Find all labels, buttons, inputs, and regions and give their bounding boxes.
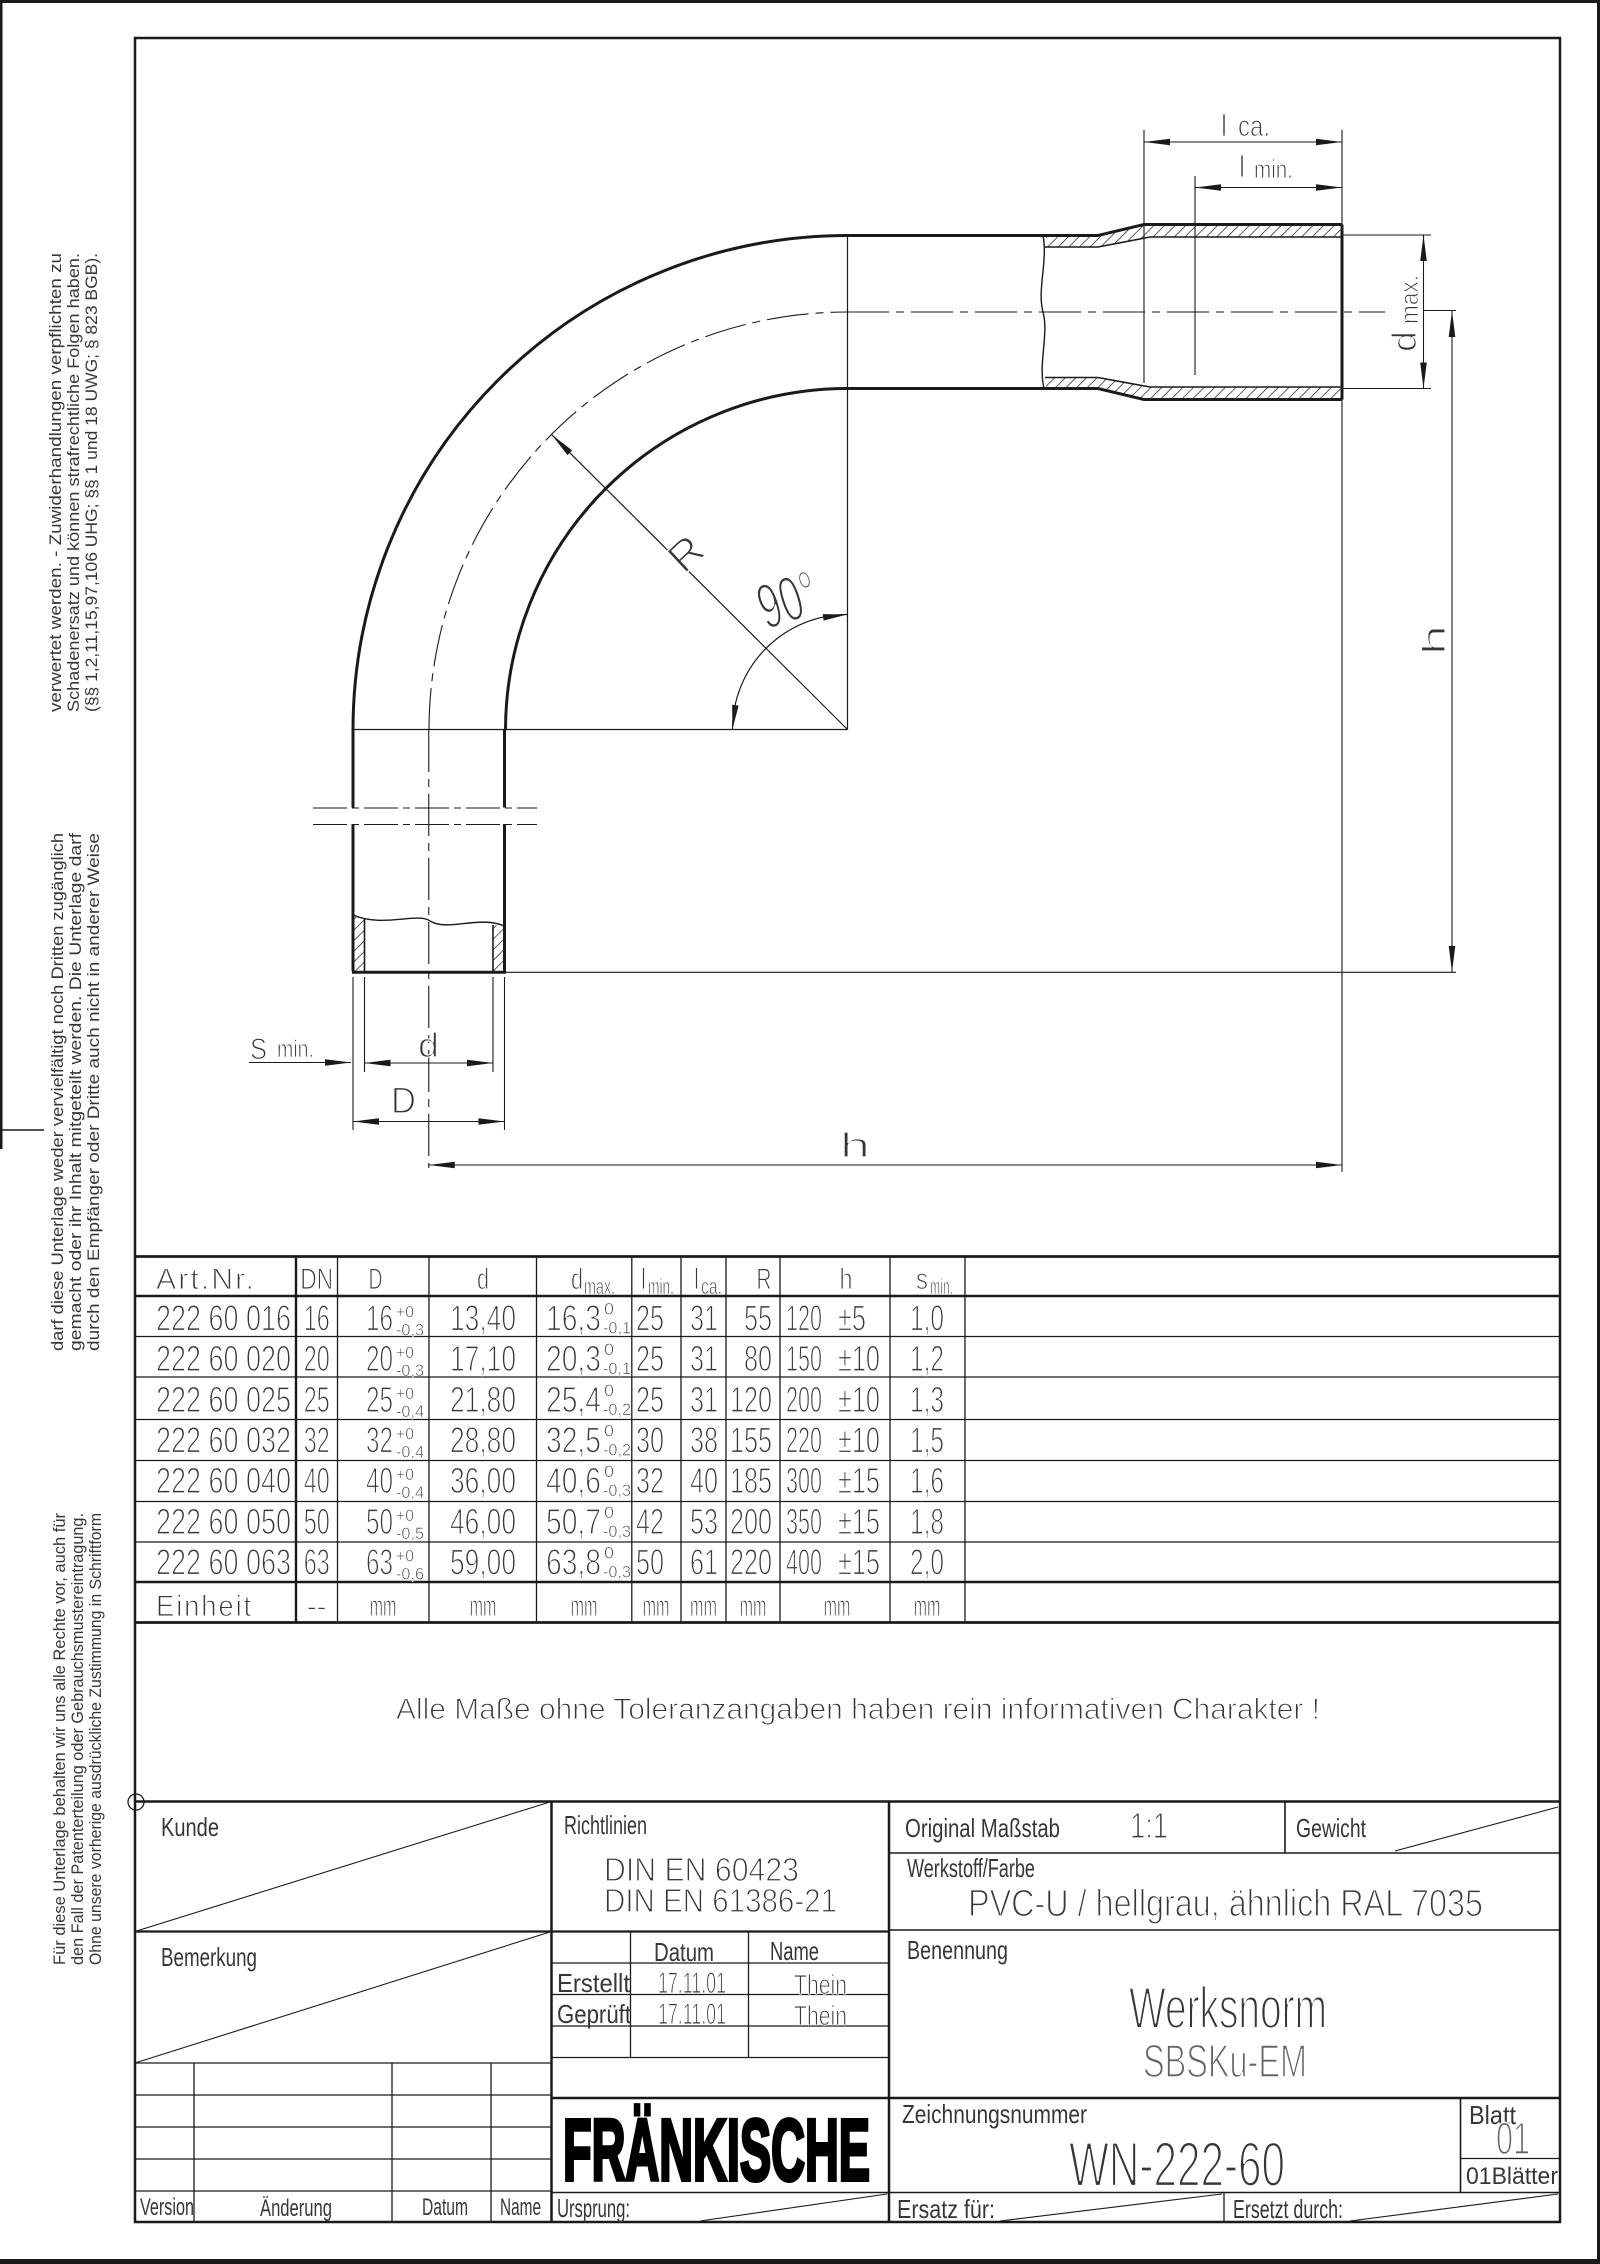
- svg-text:Datum: Datum: [654, 1937, 714, 1967]
- svg-text:+0: +0: [396, 1424, 414, 1443]
- svg-text:200: 200: [786, 1379, 822, 1420]
- svg-text:50: 50: [366, 1501, 393, 1542]
- svg-text:40: 40: [690, 1460, 718, 1501]
- svg-text:-0,4: -0,4: [396, 1442, 424, 1461]
- svg-text:1,0: 1,0: [910, 1298, 944, 1339]
- svg-text:max.: max.: [584, 1274, 615, 1299]
- svg-text:±15: ±15: [838, 1501, 880, 1542]
- svg-text:mm: mm: [470, 1590, 497, 1623]
- svg-text:±10: ±10: [838, 1379, 880, 1420]
- svg-text:Änderung: Änderung: [260, 2195, 332, 2222]
- svg-text:222 60 063: 222 60 063: [156, 1541, 291, 1582]
- svg-text:25: 25: [366, 1379, 393, 1420]
- svg-text:25: 25: [636, 1379, 664, 1420]
- svg-text:50,7: 50,7: [546, 1501, 601, 1542]
- svg-text:222 60 025: 222 60 025: [156, 1379, 291, 1420]
- svg-text:D: D: [369, 1263, 383, 1296]
- svg-text:0: 0: [604, 1543, 614, 1562]
- svg-text:R: R: [757, 1263, 772, 1296]
- svg-text:WN-222-60: WN-222-60: [1069, 2130, 1285, 2200]
- svg-text:Gewicht: Gewicht: [1296, 1813, 1367, 1843]
- svg-text:l: l: [1239, 149, 1245, 184]
- svg-text:-0,4: -0,4: [396, 1402, 424, 1421]
- svg-text:Richtlinien: Richtlinien: [564, 1810, 647, 1840]
- svg-text:350: 350: [786, 1501, 822, 1542]
- svg-text:55: 55: [744, 1298, 772, 1339]
- svg-text:31: 31: [690, 1379, 718, 1420]
- svg-text:1:1: 1:1: [1130, 1805, 1168, 1846]
- svg-text:Ohne unsere vorherige ausdrück: Ohne unsere vorherige ausdrückliche Zust…: [86, 1513, 105, 1965]
- svg-text:400: 400: [786, 1541, 822, 1582]
- svg-text:20,3: 20,3: [546, 1338, 601, 1379]
- svg-text:31: 31: [690, 1338, 718, 1379]
- svg-text:Thein: Thein: [794, 1969, 847, 2000]
- svg-text:16,3: 16,3: [546, 1298, 601, 1339]
- svg-text:-0,3: -0,3: [603, 1522, 631, 1541]
- svg-text:±5: ±5: [838, 1298, 866, 1339]
- svg-text:mm: mm: [571, 1590, 598, 1623]
- svg-text:222 60 050: 222 60 050: [156, 1501, 291, 1542]
- svg-text:-0,2: -0,2: [603, 1400, 631, 1419]
- svg-text:l: l: [641, 1263, 646, 1296]
- svg-text:DN: DN: [300, 1263, 333, 1296]
- svg-text:25: 25: [636, 1298, 664, 1339]
- svg-text:150: 150: [786, 1338, 822, 1379]
- svg-text:Art.Nr.: Art.Nr.: [156, 1263, 256, 1296]
- svg-text:darf diese Unterlage weder ver: darf diese Unterlage weder vervielfältig…: [48, 833, 67, 1351]
- svg-text:63: 63: [304, 1541, 330, 1582]
- svg-text:Benennung: Benennung: [907, 1935, 1008, 1965]
- svg-text:17,10: 17,10: [450, 1338, 516, 1379]
- svg-text:+0: +0: [396, 1384, 414, 1403]
- svg-text:Alle Maße ohne Toleranzangaben: Alle Maße ohne Toleranzangaben haben rei…: [396, 1693, 1320, 1726]
- svg-text:min.: min.: [648, 1274, 674, 1299]
- svg-text:-0,1: -0,1: [603, 1319, 631, 1338]
- svg-text:±15: ±15: [838, 1460, 880, 1501]
- svg-text:01: 01: [1496, 2113, 1530, 2164]
- svg-text:222 60 032: 222 60 032: [156, 1419, 291, 1460]
- svg-text:-0,3: -0,3: [396, 1321, 424, 1340]
- svg-text:Einheit: Einheit: [156, 1590, 253, 1623]
- svg-text:17.11.01: 17.11.01: [658, 1998, 726, 2031]
- svg-text:gemacht oder ihr Inhalt mitget: gemacht oder ihr Inhalt mitgeteilt werde…: [66, 833, 85, 1351]
- svg-text:+0: +0: [396, 1303, 414, 1322]
- svg-text:2,0: 2,0: [910, 1541, 944, 1582]
- svg-text:Kunde: Kunde: [161, 1812, 219, 1842]
- svg-text:-0,2: -0,2: [603, 1440, 631, 1459]
- svg-text:h: h: [1416, 625, 1452, 655]
- svg-text:(§§ 1,2,11,15,97,106 UHG; §§ 1: (§§ 1,2,11,15,97,106 UHG; §§ 1 und 18 UW…: [82, 253, 101, 712]
- svg-text:222 60 016: 222 60 016: [156, 1298, 291, 1339]
- svg-text:+0: +0: [396, 1546, 414, 1565]
- svg-text:mm: mm: [740, 1590, 767, 1623]
- svg-text:FRÄNKISCHE: FRÄNKISCHE: [563, 2102, 870, 2199]
- svg-text:38: 38: [690, 1419, 718, 1460]
- svg-text:46,00: 46,00: [450, 1501, 516, 1542]
- svg-text:50: 50: [304, 1501, 330, 1542]
- svg-text:63: 63: [366, 1541, 393, 1582]
- svg-text:Ersetzt durch:: Ersetzt durch:: [1233, 2194, 1343, 2224]
- svg-text:mm: mm: [824, 1590, 851, 1623]
- svg-text:Ursprung:: Ursprung:: [557, 2193, 630, 2223]
- svg-text:28,80: 28,80: [450, 1419, 516, 1460]
- svg-text:ca.: ca.: [701, 1274, 722, 1299]
- svg-text:1,5: 1,5: [910, 1419, 944, 1460]
- svg-text:Schadenersatz und können straf: Schadenersatz und können strafrechtliche…: [64, 253, 83, 712]
- svg-text:-0,3: -0,3: [603, 1562, 631, 1581]
- svg-text:D: D: [391, 1080, 416, 1121]
- svg-text:+0: +0: [396, 1465, 414, 1484]
- svg-text:Datum: Datum: [422, 2194, 468, 2221]
- svg-text:120: 120: [730, 1379, 772, 1420]
- svg-text:mm: mm: [914, 1590, 941, 1623]
- svg-text:DIN EN 61386-21: DIN EN 61386-21: [604, 1882, 837, 1919]
- svg-text:h: h: [840, 1263, 853, 1296]
- svg-text:31: 31: [690, 1298, 718, 1339]
- svg-text:Zeichnungsnummer: Zeichnungsnummer: [902, 2099, 1087, 2129]
- svg-text:+0: +0: [396, 1343, 414, 1362]
- svg-text:0: 0: [604, 1300, 614, 1319]
- svg-text:den Fall der Patenterteilung o: den Fall der Patenterteilung oder Gebrau…: [68, 1513, 87, 1965]
- svg-text:s: s: [916, 1263, 928, 1296]
- svg-text:59,00: 59,00: [450, 1541, 516, 1582]
- svg-text:220: 220: [786, 1419, 822, 1460]
- svg-text:200: 200: [730, 1501, 772, 1542]
- svg-text:53: 53: [690, 1501, 718, 1542]
- svg-text:mm: mm: [690, 1590, 717, 1623]
- svg-text:d: d: [477, 1263, 489, 1296]
- svg-text:min.: min.: [1254, 154, 1293, 184]
- svg-text:-0,6: -0,6: [396, 1564, 424, 1583]
- svg-text:Thein: Thein: [794, 2000, 847, 2031]
- svg-text:S: S: [250, 1033, 267, 1066]
- svg-text:0: 0: [604, 1503, 614, 1522]
- svg-text:42: 42: [636, 1501, 664, 1542]
- svg-text:25: 25: [304, 1379, 330, 1420]
- svg-text:Original Maßstab: Original Maßstab: [905, 1813, 1060, 1843]
- svg-text:+0: +0: [396, 1506, 414, 1525]
- svg-text:185: 185: [730, 1460, 772, 1501]
- svg-text:61: 61: [690, 1541, 718, 1582]
- svg-text:120: 120: [786, 1298, 822, 1339]
- svg-text:20: 20: [304, 1338, 330, 1379]
- svg-text:Werksnorm: Werksnorm: [1129, 1976, 1327, 2041]
- svg-text:--: --: [307, 1590, 327, 1623]
- svg-text:32: 32: [366, 1419, 393, 1460]
- svg-text:16: 16: [366, 1298, 393, 1339]
- svg-text:d: d: [1386, 331, 1424, 352]
- svg-text:Erstellt: Erstellt: [557, 1968, 631, 1998]
- svg-text:±10: ±10: [838, 1338, 880, 1379]
- svg-text:25: 25: [636, 1338, 664, 1379]
- svg-text:mm: mm: [370, 1590, 397, 1623]
- svg-text:80: 80: [744, 1338, 772, 1379]
- svg-text:min.: min.: [277, 1036, 314, 1063]
- svg-text:Version: Version: [140, 2194, 194, 2221]
- svg-text:40: 40: [304, 1460, 330, 1501]
- svg-text:1,2: 1,2: [910, 1338, 944, 1379]
- svg-text:Ersatz für:: Ersatz für:: [897, 2194, 995, 2224]
- svg-text:01Blätter: 01Blätter: [1466, 2163, 1558, 2190]
- svg-text:mm: mm: [643, 1590, 670, 1623]
- svg-text:±15: ±15: [838, 1541, 880, 1582]
- svg-text:-0,1: -0,1: [603, 1359, 631, 1378]
- svg-text:-0,4: -0,4: [396, 1483, 424, 1502]
- svg-text:40: 40: [366, 1460, 393, 1501]
- svg-text:222 60 020: 222 60 020: [156, 1338, 291, 1379]
- svg-text:l: l: [694, 1263, 699, 1296]
- svg-text:25,4: 25,4: [546, 1379, 601, 1420]
- svg-text:ca.: ca.: [1238, 110, 1270, 143]
- svg-text:21,80: 21,80: [450, 1379, 516, 1420]
- svg-text:durch den Empfänger oder Dritt: durch den Empfänger oder Dritte auch nic…: [84, 833, 103, 1351]
- svg-text:-0,5: -0,5: [396, 1524, 424, 1543]
- svg-text:300: 300: [786, 1460, 822, 1501]
- svg-text:Werkstoff/Farbe: Werkstoff/Farbe: [907, 1853, 1035, 1883]
- svg-text:-0,3: -0,3: [603, 1481, 631, 1500]
- svg-text:SBSKu-EM: SBSKu-EM: [1143, 2035, 1307, 2087]
- svg-text:1,3: 1,3: [910, 1379, 944, 1420]
- svg-text:Geprüft: Geprüft: [557, 1999, 632, 2029]
- svg-text:220: 220: [730, 1541, 772, 1582]
- svg-text:Bemerkung: Bemerkung: [161, 1942, 257, 1972]
- svg-text:32: 32: [304, 1419, 330, 1460]
- svg-text:±10: ±10: [838, 1419, 880, 1460]
- svg-text:Für diese Unterlage behalten w: Für diese Unterlage behalten wir uns all…: [50, 1513, 69, 1965]
- svg-text:63,8: 63,8: [546, 1541, 601, 1582]
- svg-text:40,6: 40,6: [546, 1460, 601, 1501]
- svg-text:Name: Name: [770, 1936, 819, 1966]
- svg-text:1,6: 1,6: [910, 1460, 944, 1501]
- svg-text:d: d: [418, 1027, 439, 1065]
- svg-text:0: 0: [604, 1462, 614, 1481]
- svg-text:30: 30: [636, 1419, 664, 1460]
- svg-text:0: 0: [604, 1381, 614, 1400]
- svg-text:PVC-U / hellgrau, ähnlich RAL: PVC-U / hellgrau, ähnlich RAL 7035: [968, 1883, 1483, 1925]
- svg-text:16: 16: [304, 1298, 330, 1339]
- svg-text:1,8: 1,8: [910, 1501, 944, 1542]
- svg-text:min.: min.: [930, 1274, 953, 1299]
- svg-text:0: 0: [604, 1421, 614, 1440]
- svg-text:-0,3: -0,3: [396, 1361, 424, 1380]
- svg-text:h: h: [840, 1127, 870, 1165]
- svg-text:verwertet werden. - Zuwiderhan: verwertet werden. - Zuwiderhandlungen ve…: [46, 253, 65, 712]
- svg-text:17.11.01: 17.11.01: [658, 1967, 726, 2000]
- svg-text:max.: max.: [1396, 275, 1424, 324]
- svg-text:50: 50: [636, 1541, 664, 1582]
- svg-text:Name: Name: [500, 2194, 541, 2221]
- svg-text:36,00: 36,00: [450, 1460, 516, 1501]
- svg-text:d: d: [571, 1263, 583, 1296]
- svg-text:155: 155: [730, 1419, 772, 1460]
- svg-text:32,5: 32,5: [546, 1419, 601, 1460]
- svg-text:13,40: 13,40: [450, 1298, 516, 1339]
- svg-text:20: 20: [366, 1338, 393, 1379]
- svg-text:l: l: [1221, 108, 1227, 143]
- svg-text:32: 32: [636, 1460, 664, 1501]
- svg-text:222 60 040: 222 60 040: [156, 1460, 291, 1501]
- svg-text:0: 0: [604, 1340, 614, 1359]
